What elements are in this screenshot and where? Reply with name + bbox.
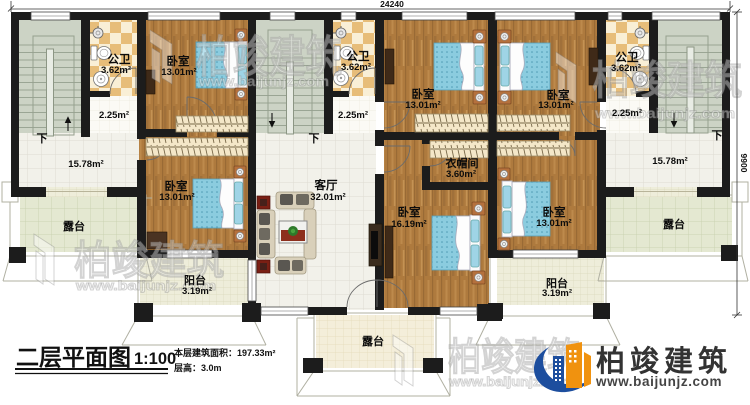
svg-text:13.01m²: 13.01m² [536, 218, 571, 229]
svg-text:3.19m²: 3.19m² [182, 286, 212, 297]
svg-text:露台: 露台 [362, 334, 384, 348]
svg-text:卧室: 卧室 [167, 54, 190, 68]
svg-text:www.baijunjz.com: www.baijunjz.com [198, 73, 329, 89]
svg-text:1:100: 1:100 [134, 350, 176, 368]
svg-text:15.78m²: 15.78m² [68, 159, 103, 170]
svg-text:柏竣建筑: 柏竣建筑 [596, 344, 732, 378]
svg-text:3.62m²: 3.62m² [101, 65, 131, 76]
svg-text:32.01m²: 32.01m² [310, 192, 345, 203]
svg-text:13.01m²: 13.01m² [161, 67, 196, 78]
svg-text:下: 下 [712, 129, 723, 142]
svg-text:层高：3.0m: 层高：3.0m [174, 362, 222, 373]
svg-text:3.60m²: 3.60m² [446, 169, 476, 180]
svg-text:3.62m²: 3.62m² [341, 62, 371, 73]
svg-text:阳台: 阳台 [184, 273, 206, 287]
svg-text:3.62m²: 3.62m² [611, 63, 641, 74]
svg-text:卧室: 卧室 [398, 205, 421, 219]
svg-text:卧室: 卧室 [412, 87, 435, 101]
svg-text:2.25m²: 2.25m² [612, 108, 642, 119]
svg-text:下: 下 [37, 132, 48, 145]
svg-text:13.01m²: 13.01m² [159, 192, 194, 203]
svg-text:2.25m²: 2.25m² [99, 110, 129, 121]
svg-text:下: 下 [309, 132, 320, 145]
svg-text:16.19m²: 16.19m² [391, 219, 426, 230]
svg-text:衣帽间: 衣帽间 [446, 156, 479, 170]
svg-text:24240: 24240 [380, 0, 404, 9]
svg-text:9900: 9900 [739, 154, 749, 173]
svg-text:露台: 露台 [663, 217, 685, 231]
svg-text:卧室: 卧室 [165, 179, 188, 193]
svg-text:本层建筑面积：197.33m²: 本层建筑面积：197.33m² [174, 347, 276, 358]
svg-text:13.01m²: 13.01m² [405, 100, 440, 111]
svg-text:15.78m²: 15.78m² [652, 156, 687, 167]
svg-text:客厅: 客厅 [314, 178, 338, 192]
svg-text:卧室: 卧室 [543, 205, 566, 219]
svg-text:13.01m²: 13.01m² [538, 100, 573, 111]
svg-text:2.25m²: 2.25m² [338, 110, 368, 121]
svg-text:露台: 露台 [63, 219, 85, 233]
svg-text:二层平面图: 二层平面图 [16, 344, 131, 370]
svg-text:3.19m²: 3.19m² [542, 288, 572, 299]
svg-text:www.baijunjz.com: www.baijunjz.com [595, 374, 722, 389]
